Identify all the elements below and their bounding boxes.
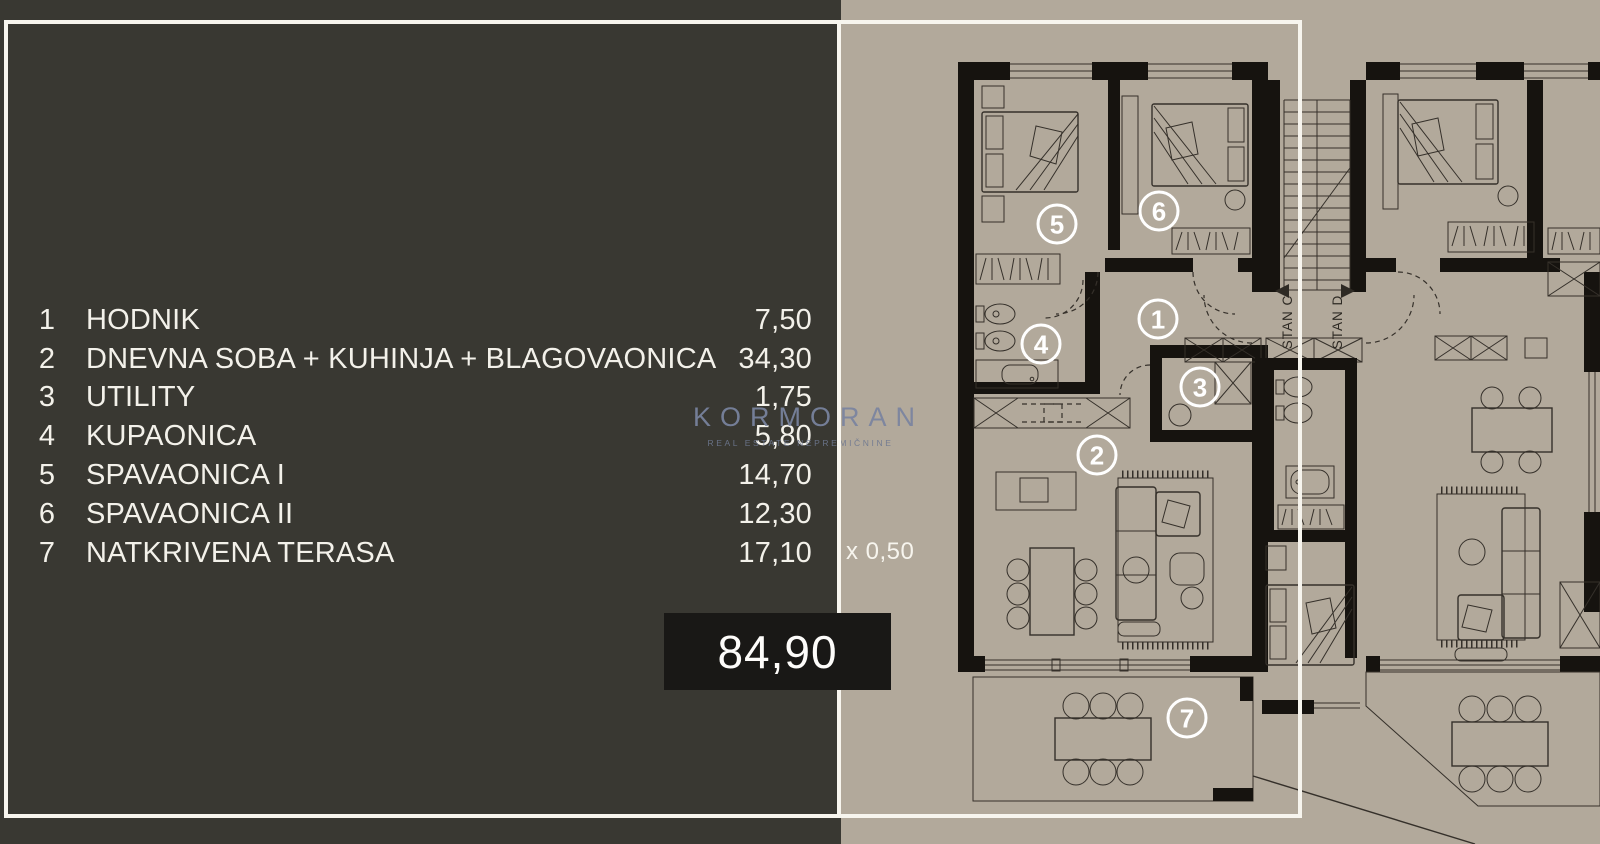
room-marker-3: 3 [1181,368,1219,406]
bedroom-d2-furniture [1266,546,1354,665]
room-area: 34,30 [738,343,812,376]
terrace-slider-stan-c [985,659,1190,671]
closet-5 [976,254,1060,284]
kitchen-counter [974,398,1130,428]
room-marker-7: 7 [1168,699,1206,737]
closet-column-d [1383,94,1398,209]
wardrobe-right-d [1560,582,1600,648]
svg-text:STAN C: STAN C [1280,295,1295,350]
stool-d [1498,186,1518,206]
svg-text:STAN D: STAN D [1330,295,1345,350]
door-arcs-stan-c [1045,272,1252,395]
room-marker-2: 2 [1078,436,1116,474]
room-name: KUPAONICA [86,420,256,453]
entrance-label-stan-d: STAN D [1330,284,1355,349]
room-number: 3 [30,381,64,414]
room-area: 1,75 [755,381,812,414]
closet-d1 [1448,222,1534,252]
svg-text:6: 6 [1152,196,1166,226]
closet-column-6 [1122,96,1138,214]
door-arc-stan-d-entry [1366,295,1414,343]
rug-d [1437,490,1525,644]
room-row: 2DNEVNA SOBA + KUHINJA + BLAGOVAONICA34,… [30,340,812,379]
utility-sink-icon [1169,404,1191,426]
room-number: 6 [30,498,64,531]
room-marker-6: 6 [1140,192,1178,230]
total-area-value: 84,90 [717,625,837,679]
apartment-stan-d [1253,62,1600,844]
closet-d-mid [1278,505,1344,529]
coffee-table-2 [1123,557,1149,583]
apartment-stan-c [958,62,1268,801]
closet-6 [1172,228,1250,254]
room-row: 6SPAVAONICA II12,30 [30,495,812,534]
svg-text:1: 1 [1151,304,1165,334]
room-number: 7 [30,537,64,570]
bed-6 [1152,104,1248,186]
nightstand-5a [982,86,1004,108]
room-marker-1: 1 [1139,300,1177,338]
bedroom-5-furniture [976,86,1078,284]
bed-d1 [1398,100,1498,184]
terrace-table-7 [1055,693,1151,785]
bed-5 [982,112,1078,192]
stool-6 [1225,190,1245,210]
svg-text:7: 7 [1180,703,1194,733]
room-row: 1HODNIK7,50 [30,301,812,340]
room-row: 5SPAVAONICA I14,70 [30,456,812,495]
room-name: NATKRIVENA TERASA [86,537,395,570]
room-schedule: 1HODNIK7,502DNEVNA SOBA + KUHINJA + BLAG… [30,301,812,573]
dining-table-2 [1007,548,1097,635]
room-number-markers: 1234567 [1022,192,1219,737]
stairs [1284,100,1350,290]
room-name: SPAVAONICA I [86,459,285,492]
room-area: 17,10 [738,537,812,570]
stair-core: STAN CSTAN D [1185,80,1414,362]
svg-text:4: 4 [1034,329,1049,359]
panel-plan-divider [837,20,841,818]
living-room-2-furniture [996,472,1213,646]
door-arc-bedroom-d [1398,272,1440,314]
coffee-table-d [1459,539,1485,565]
sofa-d [1455,508,1540,661]
room-area: 12,30 [738,498,812,531]
room-number: 4 [30,420,64,453]
room-row: 7NATKRIVENA TERASA17,10 [30,534,812,573]
room-number: 1 [30,304,64,337]
bidet-icon [976,331,1015,351]
entrance-label-stan-c: STAN C [1275,284,1295,349]
svg-text:2: 2 [1090,440,1104,470]
bedroom-6-furniture [1122,96,1250,254]
svg-text:3: 3 [1193,372,1207,402]
room-name: HODNIK [86,304,200,337]
room-area: 7,50 [755,304,812,337]
washer-icon [1215,362,1251,404]
room-row: 3UTILITY1,75 [30,379,812,418]
bathtub-icon [1286,466,1334,498]
nightstand-5b [982,196,1004,222]
floorplan-page: { "colors": { "panel_bg": "#393832", "fl… [0,0,1600,844]
nightstand-d2 [1266,546,1286,570]
living-room-stan-d [1435,336,1600,661]
sideboard-2 [996,472,1076,510]
room-name: SPAVAONICA II [86,498,293,531]
room-name: UTILITY [86,381,195,414]
room-area: 5,80 [755,420,812,453]
room-marker-4: 4 [1022,325,1060,363]
terrain-line [1253,776,1475,844]
room-area: 14,70 [738,459,812,492]
toilet-icon [976,304,1015,324]
room-number: 5 [30,459,64,492]
dining-table-d [1472,387,1552,473]
terrace-7 [973,677,1253,801]
sofa-2 [1116,487,1200,636]
armchair-2 [1170,553,1204,609]
stan-entrance-labels: STAN CSTAN D [1275,284,1355,349]
bedroom-d-furniture [1383,94,1534,314]
room-number: 2 [30,343,64,376]
svg-text:5: 5 [1050,209,1064,239]
room-name: DNEVNA SOBA + KUHINJA + BLAGOVAONICA [86,343,716,376]
terrace-multiplier: x 0,50 [846,538,914,566]
bathroom-middle-stan-d [1276,377,1344,529]
room-row: 4KUPAONICA5,80 [30,417,812,456]
total-area-box: 84,90 [664,613,891,690]
terrace-stan-d [1366,672,1600,806]
terrace-table-d [1452,696,1548,792]
room-marker-5: 5 [1038,205,1076,243]
